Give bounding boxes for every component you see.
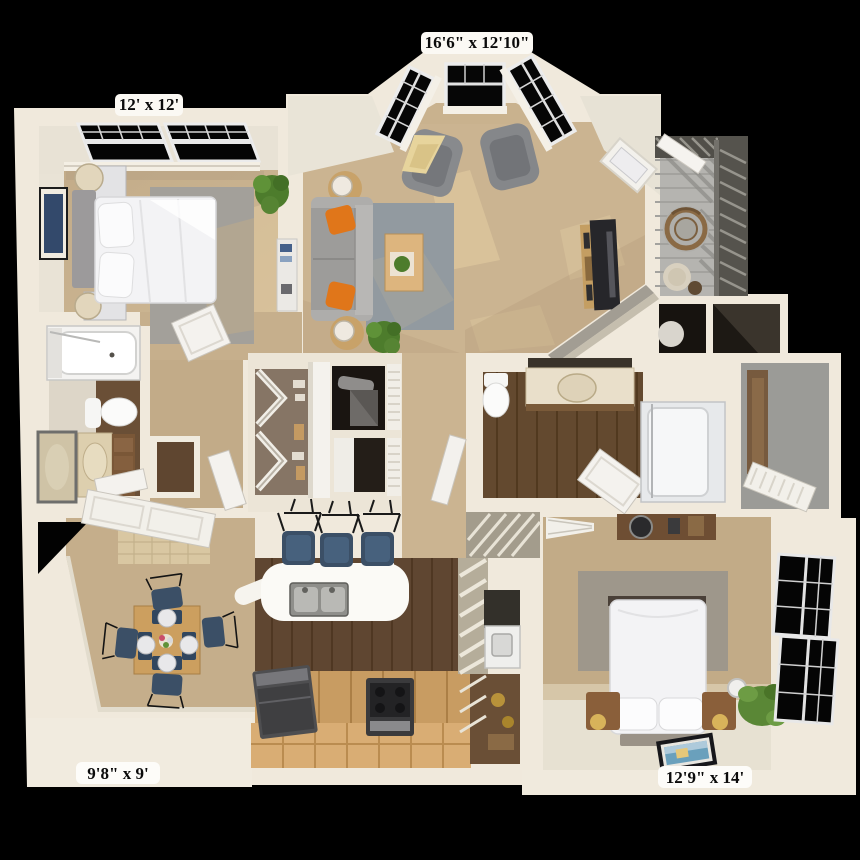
svg-text:9'8" x 9': 9'8" x 9' (87, 764, 148, 783)
svg-text:12' x 12': 12' x 12' (119, 95, 179, 114)
svg-text:12'9" x 14': 12'9" x 14' (666, 768, 744, 787)
svg-text:16'6" x 12'10": 16'6" x 12'10" (425, 33, 530, 52)
